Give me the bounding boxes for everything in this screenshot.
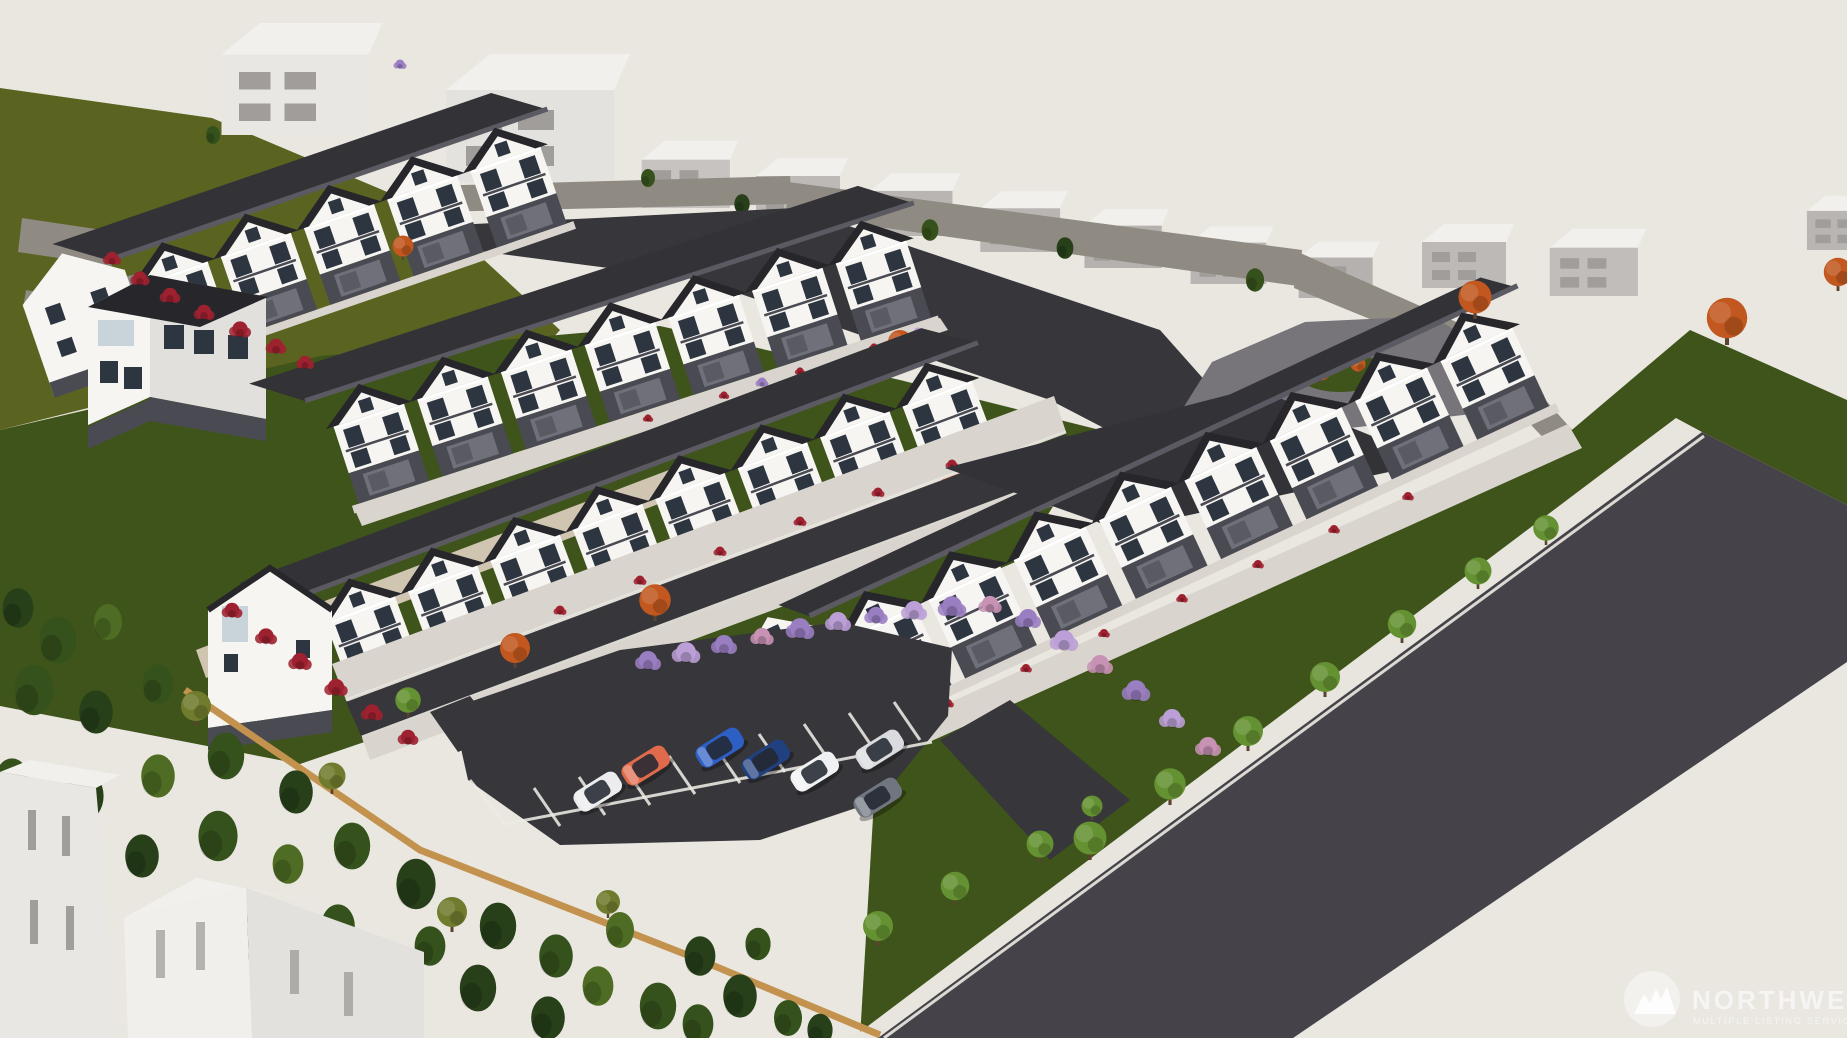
context-house [1550,229,1647,296]
evergreen-tree [94,604,122,640]
evergreen-tree [208,733,244,780]
evergreen-tree [539,934,573,977]
context-house [1422,224,1514,288]
evergreen-tree [198,811,237,861]
evergreen-tree [745,928,770,960]
evergreen-tree [279,770,313,813]
evergreen-tree [334,823,370,870]
evergreen-tree [583,966,614,1006]
evergreen-tree [1246,268,1264,291]
evergreen-tree [922,219,939,241]
evergreen-tree [460,965,496,1012]
evergreen-tree [141,754,175,797]
watermark-tagline: MULTIPLE LISTING SERVICE [1693,1016,1847,1026]
row3-end-building [208,568,332,750]
evergreen-tree [1057,237,1074,259]
evergreen-tree [3,588,34,628]
evergreen-tree [273,844,304,884]
evergreen-tree [606,912,634,948]
evergreen-tree [125,834,159,877]
evergreen-tree [531,996,565,1038]
evergreen-tree [396,859,435,909]
evergreen-tree [480,903,516,950]
evergreen-tree [40,617,76,664]
aerial-rendering: NORTHWEST MULTIPLE LISTING SERVICE [0,0,1847,1038]
evergreen-tree [14,665,53,715]
evergreen-tree [641,169,655,187]
evergreen-tree [206,126,220,144]
evergreen-tree [685,936,716,976]
evergreen-tree [143,664,174,704]
evergreen-tree [723,974,757,1017]
context-house [222,23,383,135]
evergreen-tree [640,983,676,1030]
watermark-brand: NORTHWEST [1692,985,1847,1015]
evergreen-tree [79,690,113,733]
evergreen-tree [774,1000,802,1036]
rendering-canvas: NORTHWEST MULTIPLE LISTING SERVICE [0,0,1847,1038]
